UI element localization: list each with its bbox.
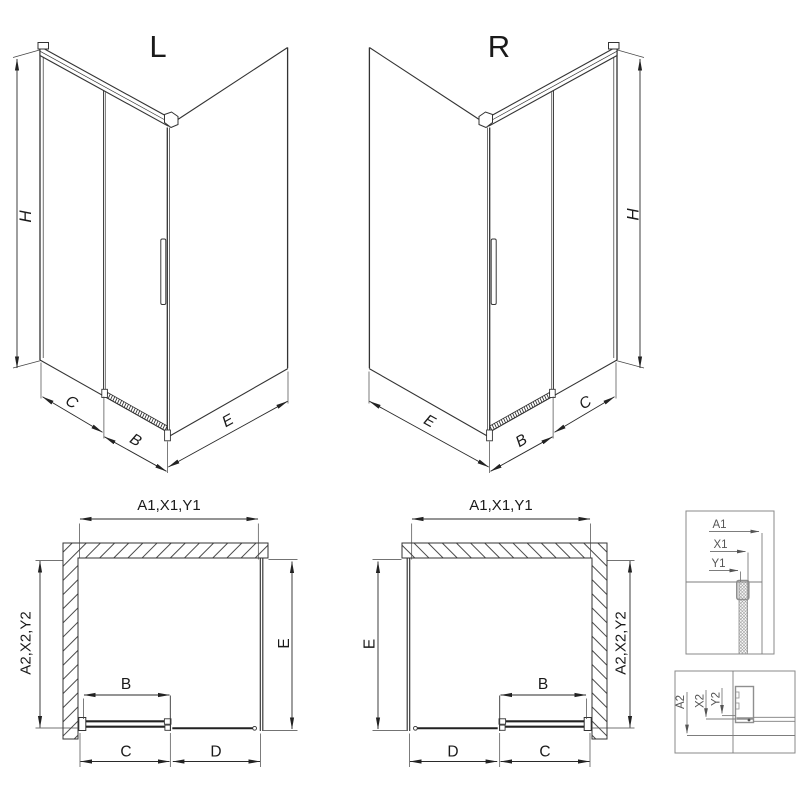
glass-strip-section	[739, 582, 748, 654]
dim-label-e: E	[362, 639, 379, 649]
dim-label-b: B	[121, 676, 131, 693]
variant-label-left: L	[149, 29, 166, 64]
dim-label-depth-refs: A2,X2,Y2	[613, 611, 630, 674]
ref-label-x1: X1	[713, 539, 727, 551]
dim-label-d: D	[447, 744, 458, 761]
dim-label-d: D	[210, 744, 221, 761]
dim-label-b: B	[538, 676, 548, 693]
dim-label-c: C	[120, 744, 131, 761]
ref-label-a2: A2	[675, 695, 687, 709]
dim-label-c: C	[539, 744, 550, 761]
ref-label-y1: Y1	[711, 558, 725, 570]
drawing-canvas: L H C B E R H E B C A1,X1,Y1 A2,X2,Y2 E …	[0, 0, 800, 800]
dim-label-depth-refs: A2,X2,Y2	[18, 611, 35, 674]
dim-label-h: H	[16, 210, 35, 223]
dim-label-h: H	[624, 208, 643, 221]
dim-label-width-refs: A1,X1,Y1	[137, 497, 200, 514]
ref-label-x2: X2	[695, 694, 707, 708]
shower-enclosure-technical-drawing: L H C B E R H E B C A1,X1,Y1 A2,X2,Y2 E …	[0, 0, 800, 800]
dim-label-width-refs: A1,X1,Y1	[469, 497, 532, 514]
dim-label-e: E	[276, 638, 293, 648]
ref-label-y2: Y2	[711, 692, 723, 706]
roller-dot	[748, 719, 751, 722]
ref-label-a1: A1	[712, 519, 726, 531]
variant-label-right: R	[488, 29, 510, 64]
